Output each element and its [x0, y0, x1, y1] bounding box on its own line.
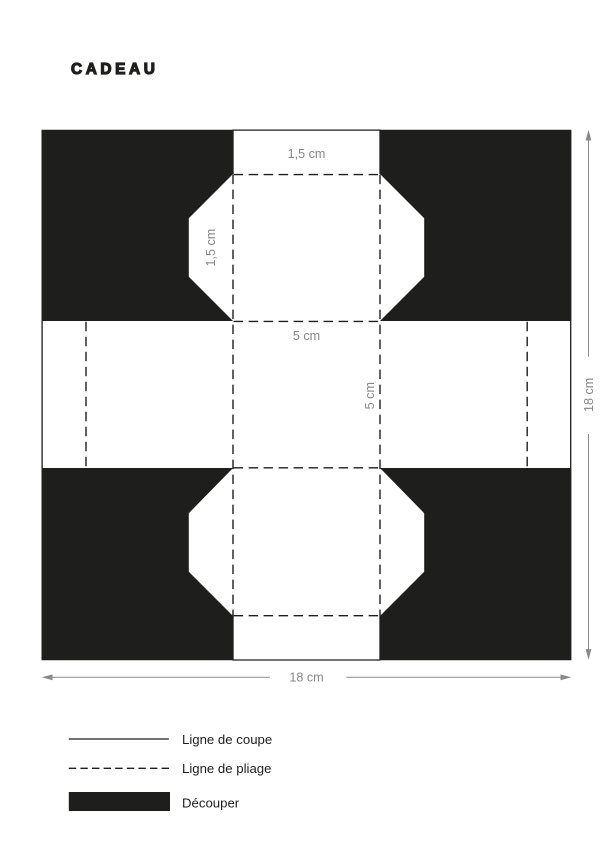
svg-text:18 cm: 18 cm [289, 670, 323, 684]
svg-text:Ligne de coupe: Ligne de coupe [182, 732, 272, 747]
svg-text:1,5 cm: 1,5 cm [288, 147, 326, 161]
svg-text:Découper: Découper [182, 796, 240, 811]
svg-text:CADEAU: CADEAU [71, 61, 158, 78]
svg-text:Ligne de pliage: Ligne de pliage [182, 761, 271, 776]
svg-text:18 cm: 18 cm [582, 378, 596, 412]
svg-text:5 cm: 5 cm [363, 382, 377, 409]
svg-text:1,5 cm: 1,5 cm [204, 229, 218, 267]
svg-text:5 cm: 5 cm [293, 329, 320, 343]
